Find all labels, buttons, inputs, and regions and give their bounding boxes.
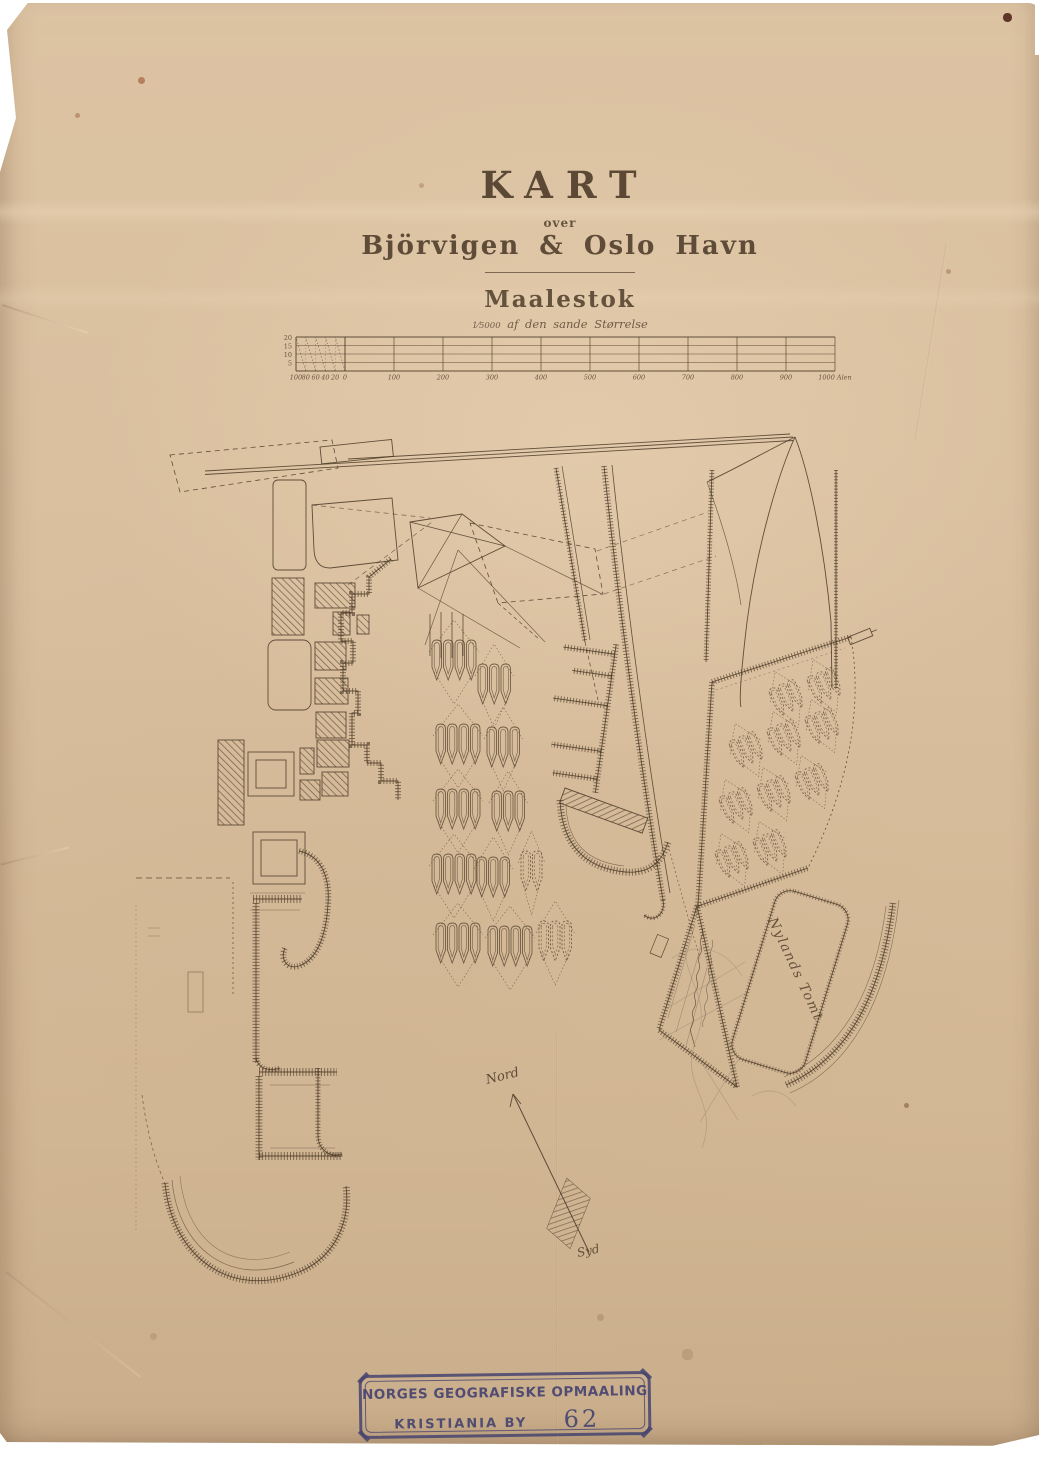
roads-and-rail bbox=[170, 434, 832, 707]
compass-south-label: Syd bbox=[576, 1241, 601, 1259]
svg-text:600: 600 bbox=[633, 374, 645, 382]
svg-text:0: 0 bbox=[343, 374, 347, 382]
svg-text:100: 100 bbox=[290, 374, 302, 382]
stamp-number: 62 bbox=[563, 1405, 600, 1434]
svg-text:800: 800 bbox=[731, 374, 743, 382]
mooring-fan-plaza bbox=[410, 512, 716, 658]
scale-heading: Maalestok bbox=[320, 286, 800, 313]
svg-text:20: 20 bbox=[284, 334, 292, 342]
svg-text:60: 60 bbox=[311, 374, 319, 382]
compass-north-label: Nord bbox=[483, 1065, 520, 1088]
moored-ships-left bbox=[429, 620, 575, 990]
svg-text:20: 20 bbox=[330, 374, 339, 382]
triangular-dock bbox=[650, 906, 737, 1087]
scan-edge bbox=[1035, 0, 1039, 55]
map-title: KART bbox=[320, 163, 800, 207]
scale-bar: 2015105100806040200100200300400500600700… bbox=[284, 334, 852, 382]
title-rule bbox=[485, 272, 635, 273]
nylands-dock: Nylands Tomt bbox=[728, 887, 852, 1078]
svg-text:80: 80 bbox=[302, 374, 310, 382]
stamp-org-name: NORGES GEOGRAFISKE OPMAALING bbox=[362, 1383, 648, 1403]
compass-feather bbox=[540, 1178, 598, 1249]
svg-text:15: 15 bbox=[284, 343, 292, 351]
scale-fraction: 1⁄5000 bbox=[472, 321, 500, 331]
compass-arrow: NordSyd bbox=[483, 1065, 601, 1260]
svg-text:400: 400 bbox=[534, 374, 547, 382]
svg-text:300: 300 bbox=[486, 374, 498, 382]
svg-text:40: 40 bbox=[320, 374, 329, 382]
svg-text:200: 200 bbox=[436, 374, 449, 382]
scale-subtitle: 1⁄5000 af den sande Størrelse bbox=[320, 317, 800, 331]
svg-text:100: 100 bbox=[388, 374, 400, 382]
central-quays bbox=[541, 637, 616, 793]
svg-text:900: 900 bbox=[780, 374, 792, 382]
svg-text:1000 Alen: 1000 Alen bbox=[818, 374, 851, 382]
city-blocks bbox=[218, 480, 398, 967]
map-title-sub: over bbox=[320, 216, 800, 230]
svg-text:700: 700 bbox=[682, 374, 694, 382]
west-shore-quays bbox=[136, 878, 347, 1281]
svg-text:5: 5 bbox=[288, 360, 292, 368]
planned-ships-basin bbox=[706, 653, 853, 894]
piers bbox=[556, 465, 836, 918]
central-quay-arm bbox=[560, 788, 648, 833]
archive-stamp: NORGES GEOGRAFISKE OPMAALING KRISTIANIA … bbox=[359, 1371, 652, 1439]
dock-label: Nylands Tomt bbox=[764, 914, 827, 1024]
scale-subtitle-text: af den sande Størrelse bbox=[507, 317, 648, 331]
svg-text:500: 500 bbox=[584, 374, 596, 382]
map-title-place: Björvigen & Oslo Havn bbox=[320, 231, 800, 261]
svg-text:10: 10 bbox=[284, 351, 292, 359]
stamp-city: KRISTIANIA BY bbox=[394, 1416, 527, 1433]
scan-edge bbox=[0, 0, 1039, 3]
